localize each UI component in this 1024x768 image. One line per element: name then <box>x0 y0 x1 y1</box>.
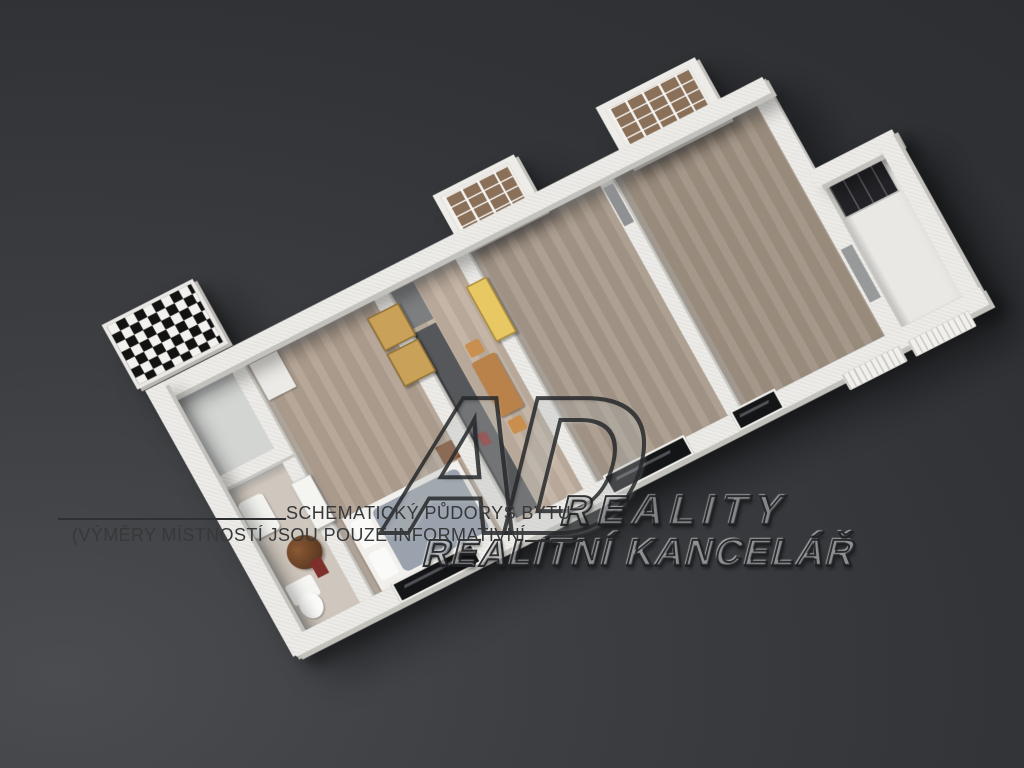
caption-line-2: (VÝMĚRY MÍSTNOSTÍ JSOU POUZE INFORMATIVN… <box>72 525 525 546</box>
floorplan-render: SCHEMATICKÝ PŮDORYS BYTU (VÝMĚRY MÍSTNOS… <box>0 0 1024 768</box>
caption-rule-right <box>525 540 583 542</box>
caption: SCHEMATICKÝ PŮDORYS BYTU (VÝMĚRY MÍSTNOS… <box>58 503 583 546</box>
caption-line-1: SCHEMATICKÝ PŮDORYS BYTU <box>286 503 571 524</box>
caption-rule-left <box>58 518 286 520</box>
watermark-brand: REALITY <box>557 490 796 532</box>
